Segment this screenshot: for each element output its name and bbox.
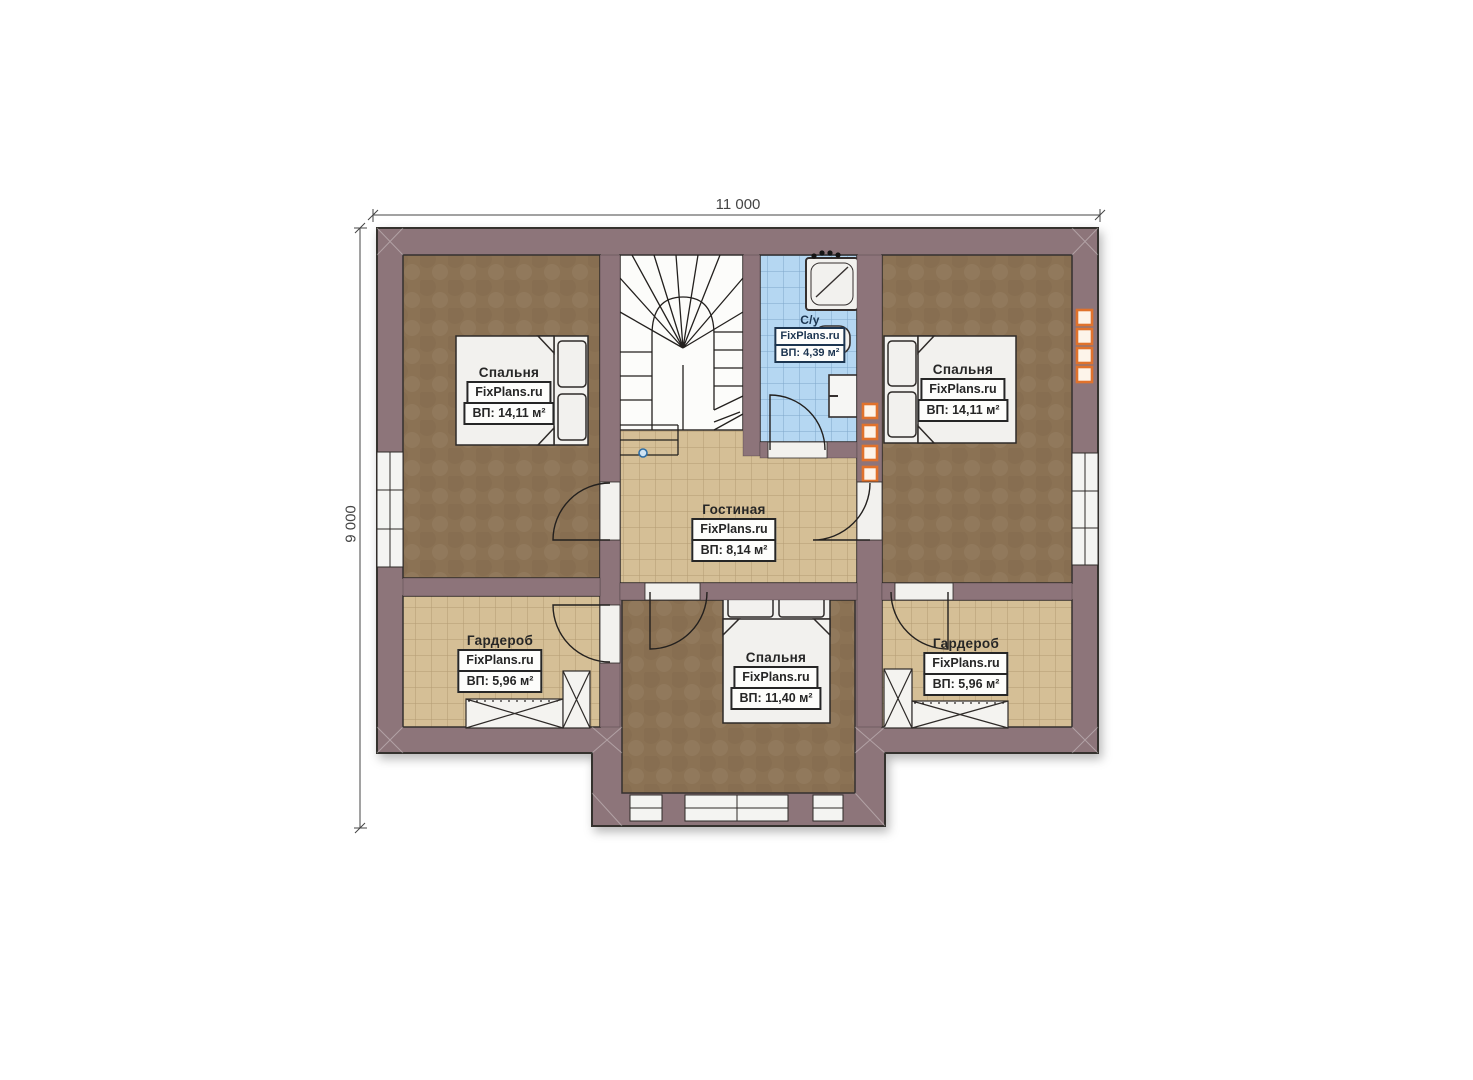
bed-center — [723, 592, 830, 723]
shower-icon — [806, 250, 858, 310]
window — [685, 795, 788, 821]
window — [813, 795, 843, 821]
floor-plan-drawing — [0, 0, 1473, 1080]
window — [377, 452, 403, 567]
door-opening — [645, 583, 700, 600]
sink-icon — [814, 326, 850, 354]
door-opening — [600, 605, 620, 663]
bed-left — [456, 336, 588, 445]
door-opening — [768, 442, 827, 458]
cabinet-icon — [829, 375, 857, 417]
floor-plan-page: 11 000 9 000 Спальня FixPlans.ru ВП: 14,… — [0, 0, 1473, 1080]
stair-newel-post — [639, 449, 647, 457]
window — [630, 795, 662, 821]
dimension-width-label: 11 000 — [716, 196, 761, 213]
door-opening — [600, 482, 620, 540]
dimension-height-label: 9 000 — [343, 505, 360, 543]
door-opening — [895, 583, 953, 600]
window — [1072, 453, 1098, 565]
bed-right — [884, 336, 1016, 443]
